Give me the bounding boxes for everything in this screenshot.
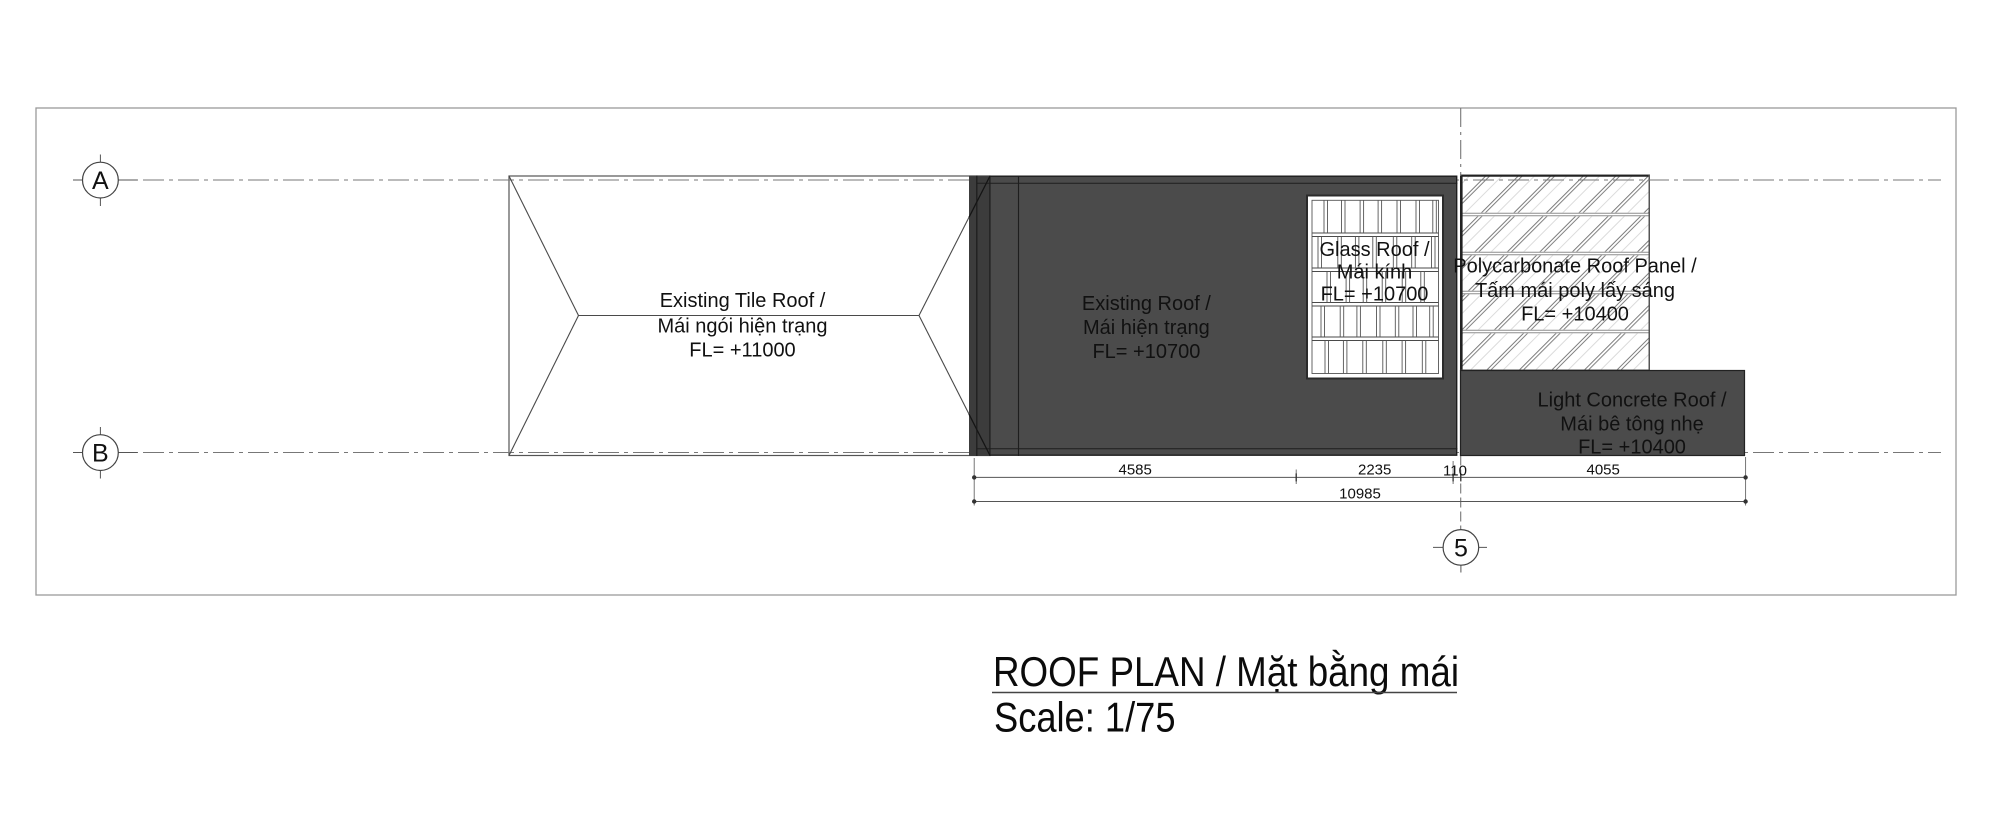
svg-text:Scale: 1/75: Scale: 1/75 — [994, 694, 1176, 741]
svg-text:Mái hiện trạng: Mái hiện trạng — [1083, 317, 1210, 339]
svg-text:FL= +11000: FL= +11000 — [689, 340, 795, 362]
svg-text:FL= +10400: FL= +10400 — [1578, 436, 1686, 458]
svg-text:Mái ngói hiện trạng: Mái ngói hiện trạng — [657, 316, 827, 338]
svg-text:Mái bê tông nhẹ: Mái bê tông nhẹ — [1560, 413, 1703, 435]
svg-text:A: A — [92, 167, 109, 195]
svg-text:FL= +10400: FL= +10400 — [1521, 303, 1629, 325]
svg-text:Glass Roof /: Glass Roof / — [1319, 239, 1429, 261]
svg-text:Mái kính: Mái kính — [1337, 261, 1413, 283]
svg-text:4585: 4585 — [1119, 461, 1152, 478]
svg-text:ROOF PLAN / Mặt bằng mái: ROOF PLAN / Mặt bằng mái — [993, 648, 1459, 695]
svg-text:5: 5 — [1454, 534, 1468, 562]
svg-text:Existing Roof /: Existing Roof / — [1082, 293, 1211, 315]
svg-text:Polycarbonate Roof Panel /: Polycarbonate Roof Panel / — [1453, 255, 1697, 277]
svg-text:B: B — [92, 440, 109, 468]
svg-text:110: 110 — [1443, 462, 1467, 479]
svg-text:FL= +10700: FL= +10700 — [1092, 341, 1200, 363]
svg-text:2235: 2235 — [1358, 461, 1391, 478]
svg-text:Tấm mái poly lấy sáng: Tấm mái poly lấy sáng — [1475, 280, 1675, 302]
svg-text:Light Concrete Roof /: Light Concrete Roof / — [1538, 389, 1727, 411]
svg-text:10985: 10985 — [1339, 485, 1381, 502]
svg-text:Existing Tile Roof /: Existing Tile Roof / — [660, 290, 826, 312]
svg-text:4055: 4055 — [1587, 461, 1620, 478]
svg-text:FL= +10700: FL= +10700 — [1321, 283, 1429, 305]
